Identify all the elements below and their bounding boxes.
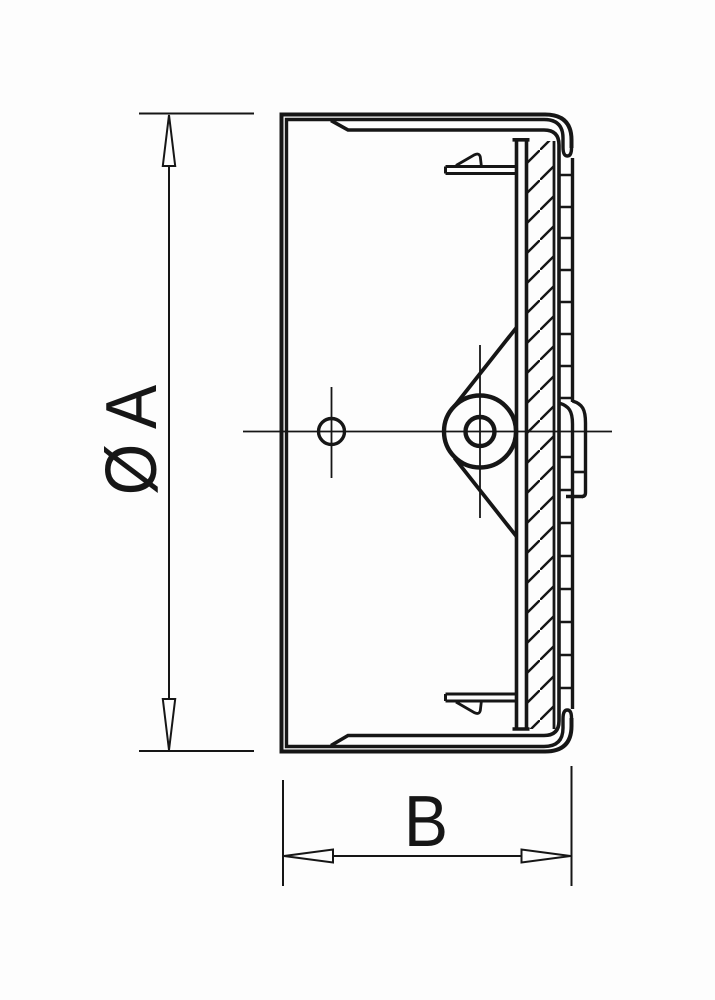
background [0,0,715,1000]
width-label: B [404,780,448,861]
technical-drawing: Ø A B [0,0,715,1000]
diameter-label: Ø A [90,385,171,495]
hatch-fill [527,141,554,729]
section-hatch [527,141,554,729]
drawing-canvas: Ø A B [0,0,715,1000]
